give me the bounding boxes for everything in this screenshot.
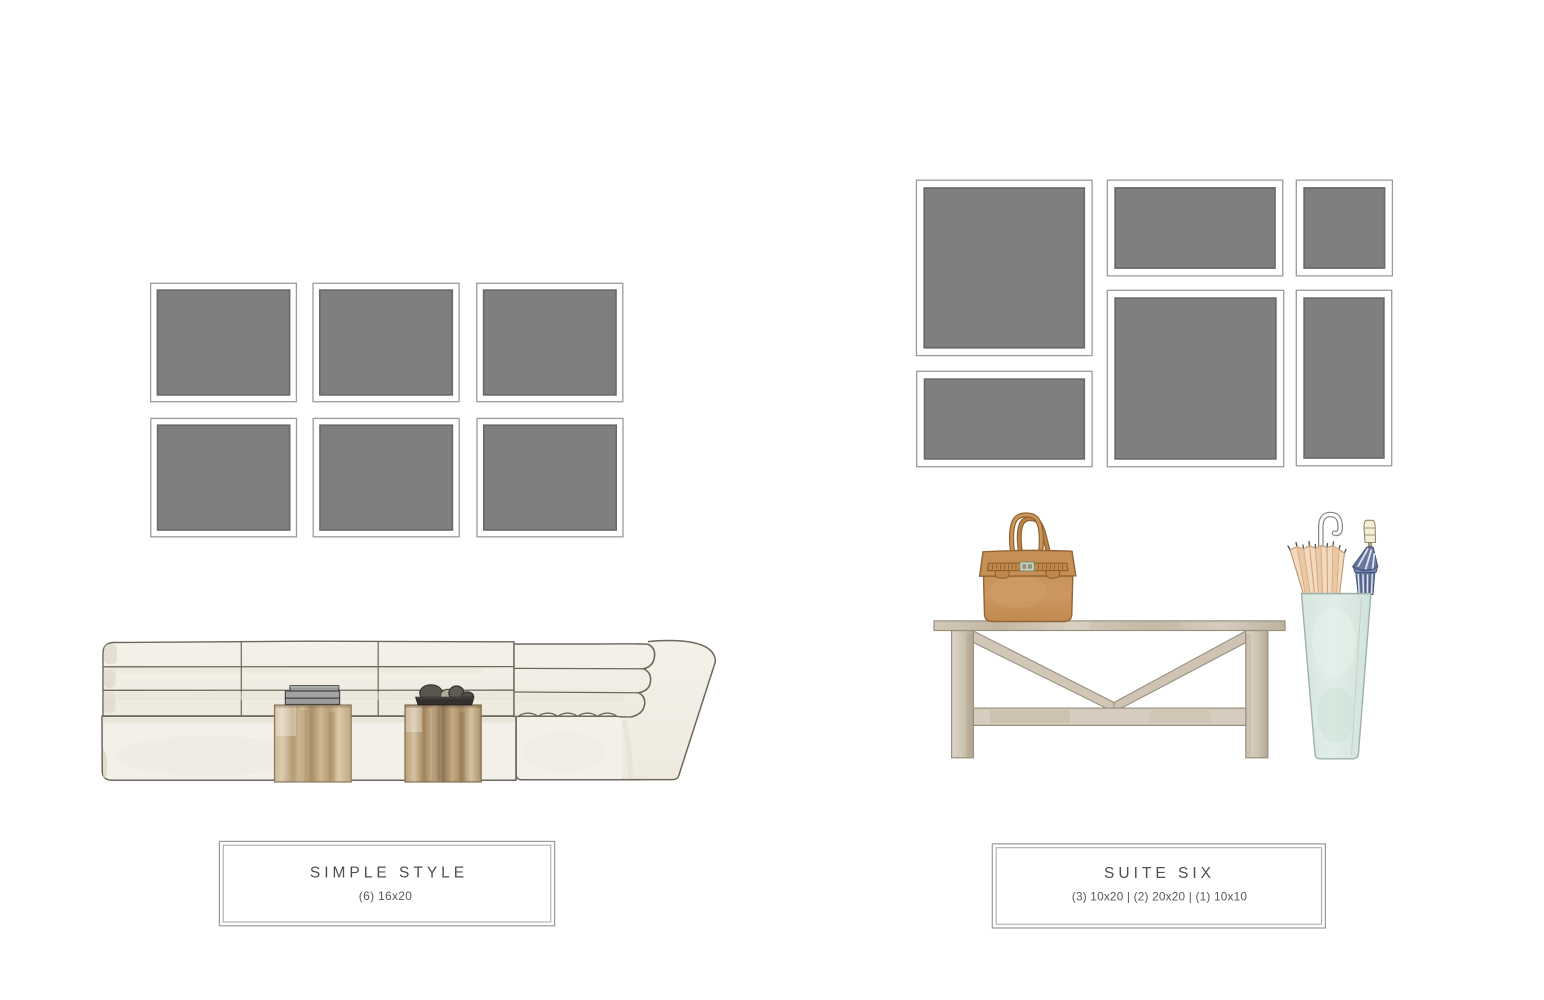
svg-text:SIMPLE STYLE: SIMPLE STYLE — [310, 865, 468, 882]
svg-text:SUITE SIX: SUITE SIX — [1104, 865, 1215, 882]
svg-text:(6) 16x20: (6) 16x20 — [359, 889, 412, 903]
svg-text:(3) 10x20 | (2) 20x20 | (1) 10: (3) 10x20 | (2) 20x20 | (1) 10x10 — [1072, 889, 1248, 903]
